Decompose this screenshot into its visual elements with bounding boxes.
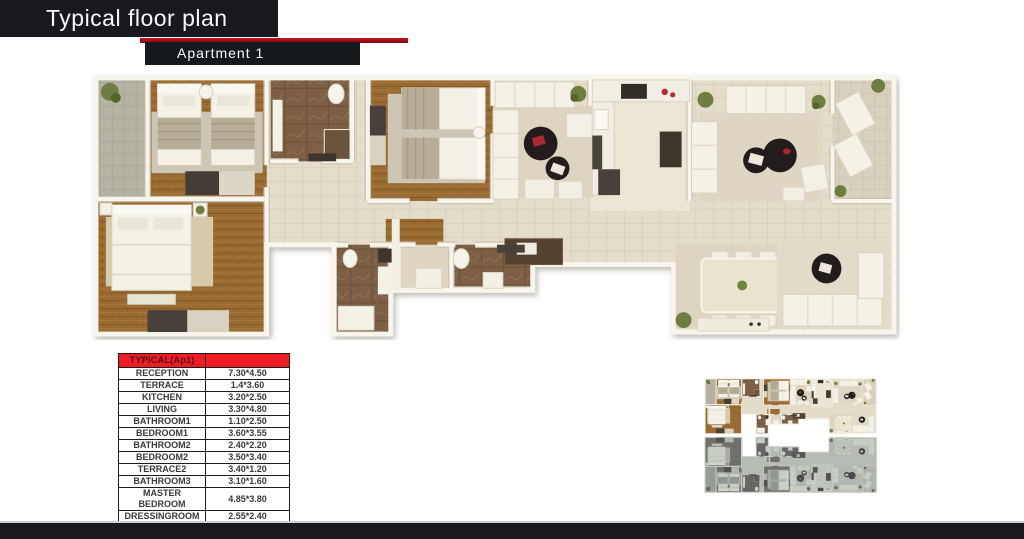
table-header-cell: TYPICAL(Ap1)	[119, 354, 206, 368]
table-row: TERRACE23.40*1.20	[119, 464, 290, 476]
room-name: RECEPTION	[119, 368, 206, 380]
room-size: 3.60*3.55	[206, 428, 290, 440]
room-name: KITCHEN	[119, 392, 206, 404]
table-row: BATHROOM22.40*2.20	[119, 440, 290, 452]
page-title: Typical floor plan	[0, 0, 278, 37]
room-name: MASTER BEDROOM	[119, 488, 206, 511]
key-plan-thumbnail-active	[703, 377, 878, 435]
room-name: LIVING	[119, 404, 206, 416]
room-size: 3.10*1.60	[206, 476, 290, 488]
table-row: LIVING3.30*4.80	[119, 404, 290, 416]
table-row: MASTER BEDROOM4.85*3.80	[119, 488, 290, 511]
table-row: RECEPTION7.30*4.50	[119, 368, 290, 380]
room-name: TERRACE	[119, 380, 206, 392]
room-name: BEDROOM1	[119, 428, 206, 440]
room-name: TERRACE2	[119, 464, 206, 476]
room-size: 3.20*2.50	[206, 392, 290, 404]
bottom-bar	[0, 521, 1024, 539]
dimensions-table: TYPICAL(Ap1) RECEPTION7.30*4.50 TERRACE1…	[118, 353, 290, 523]
room-size: 3.30*4.80	[206, 404, 290, 416]
room-name: BATHROOM1	[119, 416, 206, 428]
room-size: 2.40*2.20	[206, 440, 290, 452]
table-row: BATHROOM11.10*2.50	[119, 416, 290, 428]
key-plan-thumbnail-inactive	[703, 436, 878, 494]
table-row: BEDROOM23.50*3.40	[119, 452, 290, 464]
room-size: 1.10*2.50	[206, 416, 290, 428]
floor-plan-slide: { "header": { "title": "Typical floor pl…	[0, 0, 1024, 539]
table-row: BATHROOM33.10*1.60	[119, 476, 290, 488]
table-row: KITCHEN3.20*2.50	[119, 392, 290, 404]
table-row: BEDROOM13.60*3.55	[119, 428, 290, 440]
room-size: 1.4*3.60	[206, 380, 290, 392]
table-header-row: TYPICAL(Ap1)	[119, 354, 290, 368]
room-size: 3.40*1.20	[206, 464, 290, 476]
room-name: BATHROOM3	[119, 476, 206, 488]
room-size: 4.85*3.80	[206, 488, 290, 511]
title-bar: Typical floor plan	[0, 0, 278, 37]
room-name: BATHROOM2	[119, 440, 206, 452]
table-row: TERRACE1.4*3.60	[119, 380, 290, 392]
room-size: 3.50*3.40	[206, 452, 290, 464]
floor-plan-main	[88, 70, 900, 340]
apartment-label-bar: Apartment 1	[145, 42, 360, 65]
table-header-empty-cell	[206, 354, 290, 368]
apartment-label: Apartment 1	[145, 42, 360, 65]
room-size: 7.30*4.50	[206, 368, 290, 380]
room-name: BEDROOM2	[119, 452, 206, 464]
